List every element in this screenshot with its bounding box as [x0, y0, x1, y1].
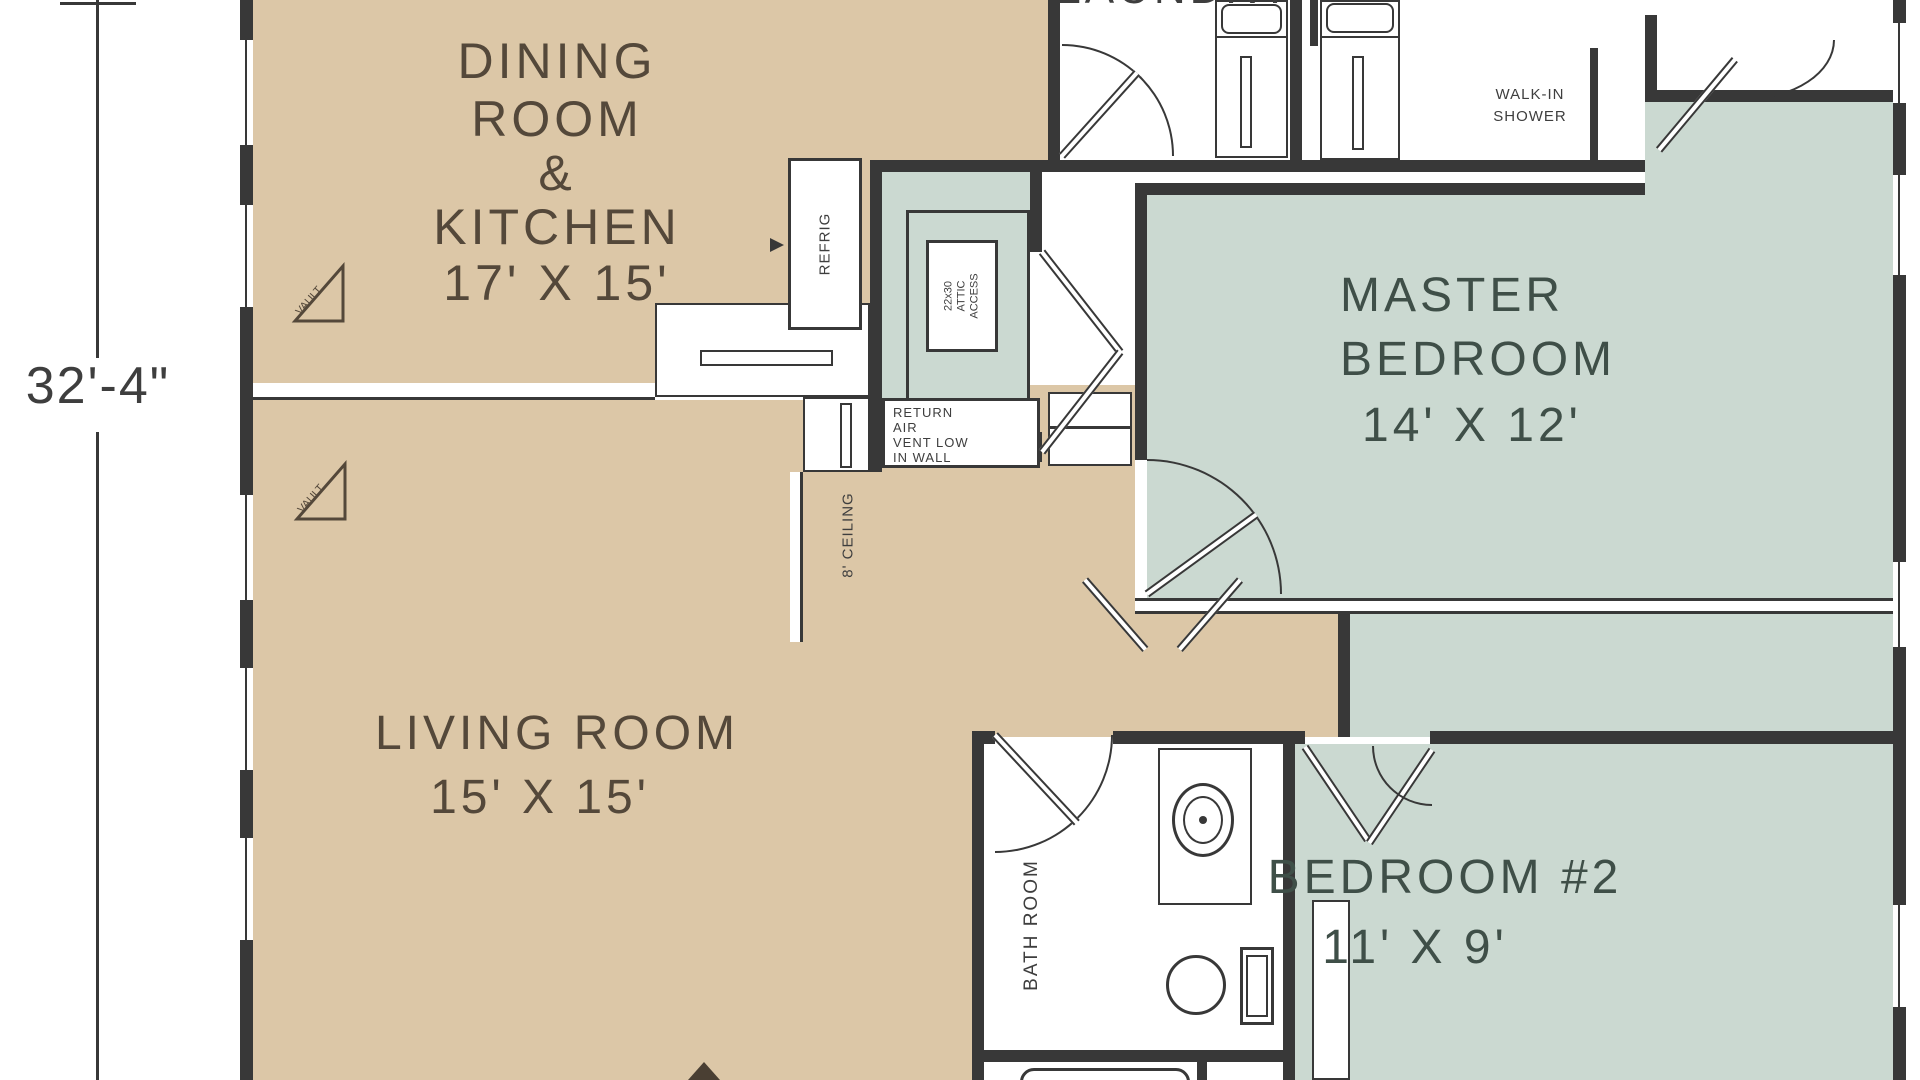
vanity-sink: [1326, 3, 1394, 33]
bedroom2-fill: [1350, 614, 1893, 737]
window-glass-line: [1898, 175, 1900, 275]
wall: [972, 1050, 1295, 1062]
attic-label-line: ACCESS: [969, 273, 982, 318]
cabinet-door-line: [1240, 56, 1252, 148]
window-glass-line: [245, 668, 247, 770]
walk-in-shower-label-line2: SHOWER: [1430, 108, 1630, 125]
vault-symbol: VAULT: [290, 460, 350, 524]
window-glass-line: [245, 495, 247, 600]
kitchen-sink: [700, 350, 833, 366]
bedroom2-size-label: 11' X 9': [1215, 920, 1615, 975]
window-glass-line: [245, 205, 247, 307]
hallway-fill: [1135, 614, 1350, 737]
wall: [870, 160, 882, 472]
dining-room-label-line2: ROOM: [357, 90, 757, 148]
return-air-label-line: AIR: [893, 420, 1037, 435]
dining-room-label-line3: &: [357, 144, 757, 202]
attic-label-line: 22x30: [943, 273, 956, 318]
kitchen-counter-edge: [840, 403, 852, 468]
return-air-vent-box: RETURN AIR VENT LOW IN WALL: [882, 398, 1040, 468]
wall-cavity: [790, 472, 800, 642]
wall: [1645, 15, 1657, 102]
dimension-line: [96, 0, 99, 358]
dining-room-size-label: 17' X 15': [357, 254, 757, 312]
wall-cavity: [1135, 601, 1893, 611]
living-room-label: LIVING ROOM: [357, 706, 757, 761]
master-bedroom-size-label: 14' X 12': [1362, 398, 1822, 453]
window-glass-line: [1898, 905, 1900, 1007]
wall: [253, 397, 655, 400]
wall: [1135, 611, 1893, 614]
master-bedroom-label-line2: BEDROOM: [1340, 332, 1800, 387]
bedroom2-fill: [1295, 744, 1893, 1080]
floor-plan: 32'-4": [0, 0, 1920, 1080]
return-air-label-line: IN WALL: [893, 450, 1037, 465]
wall: [870, 160, 1645, 172]
window-glass-line: [1898, 23, 1900, 103]
wall: [800, 472, 803, 642]
door-leaf: [1039, 250, 1123, 355]
dimension-tick: [60, 2, 136, 5]
dining-kitchen-room-fill: [870, 0, 1048, 160]
walk-in-shower-label-line1: WALK-IN: [1430, 86, 1630, 103]
wall: [1283, 744, 1295, 1080]
bathtub: [1020, 1068, 1190, 1080]
vault-label: VAULT: [296, 482, 327, 516]
counter-edge: [1320, 36, 1400, 38]
vault-symbol: VAULT: [288, 262, 348, 326]
bedroom2-label: BEDROOM #2: [1245, 850, 1645, 905]
wall: [1197, 1062, 1207, 1080]
dimension-label: 32'-4": [0, 356, 196, 416]
wall-shower-partition: [1590, 48, 1598, 160]
cabinet-door-line: [1352, 56, 1364, 150]
wall-cavity: [253, 383, 655, 397]
return-air-label-line: RETURN: [893, 405, 1037, 420]
wall: [1290, 0, 1302, 160]
counter-edge: [1215, 36, 1288, 38]
wall: [1135, 183, 1147, 460]
wall: [1135, 183, 1645, 195]
window-glass-line: [245, 838, 247, 940]
wall: [1338, 614, 1350, 737]
wall: [1048, 0, 1060, 160]
window-glass-line: [245, 40, 247, 145]
wall: [1030, 172, 1042, 252]
dimension-line: [96, 432, 99, 1080]
dining-room-label-line4: KITCHEN: [357, 198, 757, 256]
vault-label: VAULT: [294, 284, 325, 318]
wall: [1113, 731, 1305, 744]
wall: [1430, 731, 1893, 744]
kitchen-counter: [803, 397, 870, 472]
laundry-label: LAUNDRY: [1025, 0, 1325, 14]
wall: [972, 731, 984, 1080]
bath-sink-drain: [1199, 816, 1207, 824]
window-glass-line: [1898, 562, 1900, 647]
return-air-label-line: VENT LOW: [893, 435, 1037, 450]
dining-room-label-line1: DINING: [357, 32, 757, 90]
attic-label-line: ATTIC: [956, 273, 969, 318]
master-bedroom-label-line1: MASTER: [1340, 268, 1800, 323]
living-room-size-label: 15' X 15': [340, 770, 740, 825]
